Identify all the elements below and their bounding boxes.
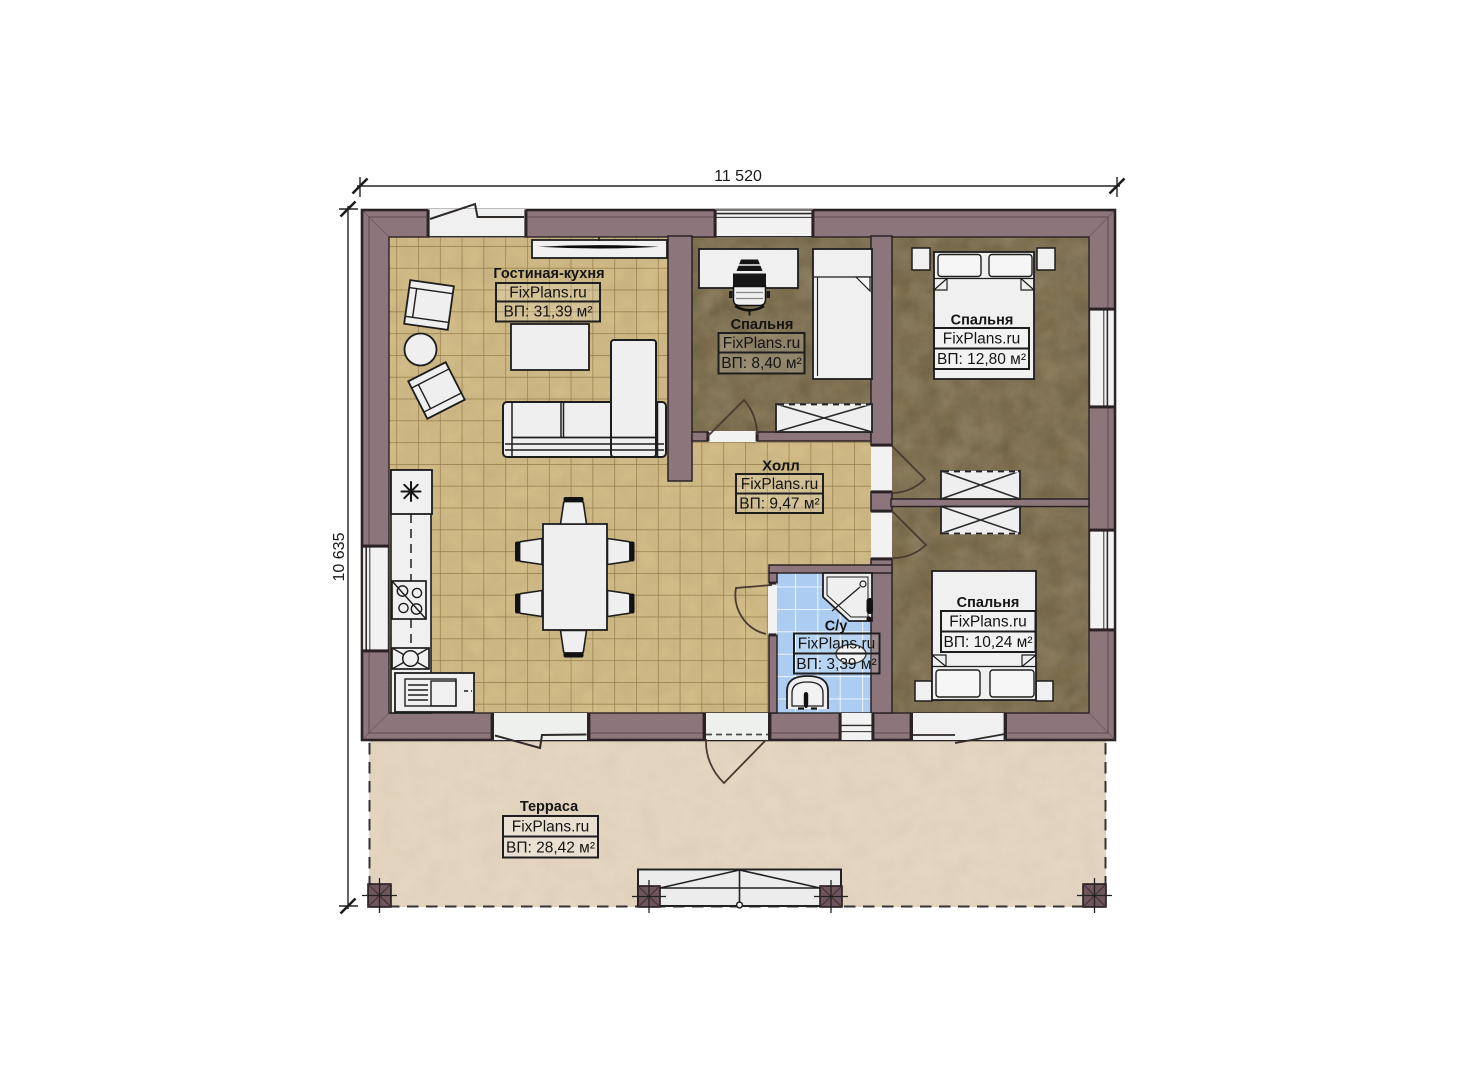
svg-text:10 635: 10 635 bbox=[331, 532, 348, 581]
svg-text:С/у: С/у bbox=[825, 619, 848, 635]
svg-text:ВП: 9,47 м²: ВП: 9,47 м² bbox=[739, 496, 819, 513]
svg-text:11 520: 11 520 bbox=[714, 168, 762, 185]
svg-text:Терраса: Терраса bbox=[520, 799, 579, 815]
svg-text:Холл: Холл bbox=[762, 458, 800, 475]
svg-text:ВП: 28,42 м²: ВП: 28,42 м² bbox=[506, 840, 595, 857]
svg-text:FixPlans.ru: FixPlans.ru bbox=[949, 614, 1027, 631]
svg-text:FixPlans.ru: FixPlans.ru bbox=[509, 285, 587, 302]
svg-text:FixPlans.ru: FixPlans.ru bbox=[512, 819, 590, 836]
svg-text:ВП: 8,40 м²: ВП: 8,40 м² bbox=[721, 355, 801, 372]
svg-text:Спальня: Спальня bbox=[731, 317, 794, 333]
svg-text:Гостиная-кухня: Гостиная-кухня bbox=[493, 266, 604, 282]
svg-text:ВП: 3,39 м²: ВП: 3,39 м² bbox=[796, 656, 876, 673]
svg-text:ВП: 10,24 м²: ВП: 10,24 м² bbox=[943, 634, 1032, 651]
svg-text:Спальня: Спальня bbox=[957, 595, 1020, 611]
svg-text:FixPlans.ru: FixPlans.ru bbox=[741, 476, 819, 493]
svg-text:ВП: 12,80 м²: ВП: 12,80 м² bbox=[937, 351, 1026, 368]
svg-text:ВП: 31,39 м²: ВП: 31,39 м² bbox=[503, 304, 592, 321]
svg-text:Спальня: Спальня bbox=[951, 313, 1014, 329]
svg-text:FixPlans.ru: FixPlans.ru bbox=[943, 331, 1021, 348]
svg-text:FixPlans.ru: FixPlans.ru bbox=[798, 636, 876, 653]
svg-text:FixPlans.ru: FixPlans.ru bbox=[723, 335, 801, 352]
